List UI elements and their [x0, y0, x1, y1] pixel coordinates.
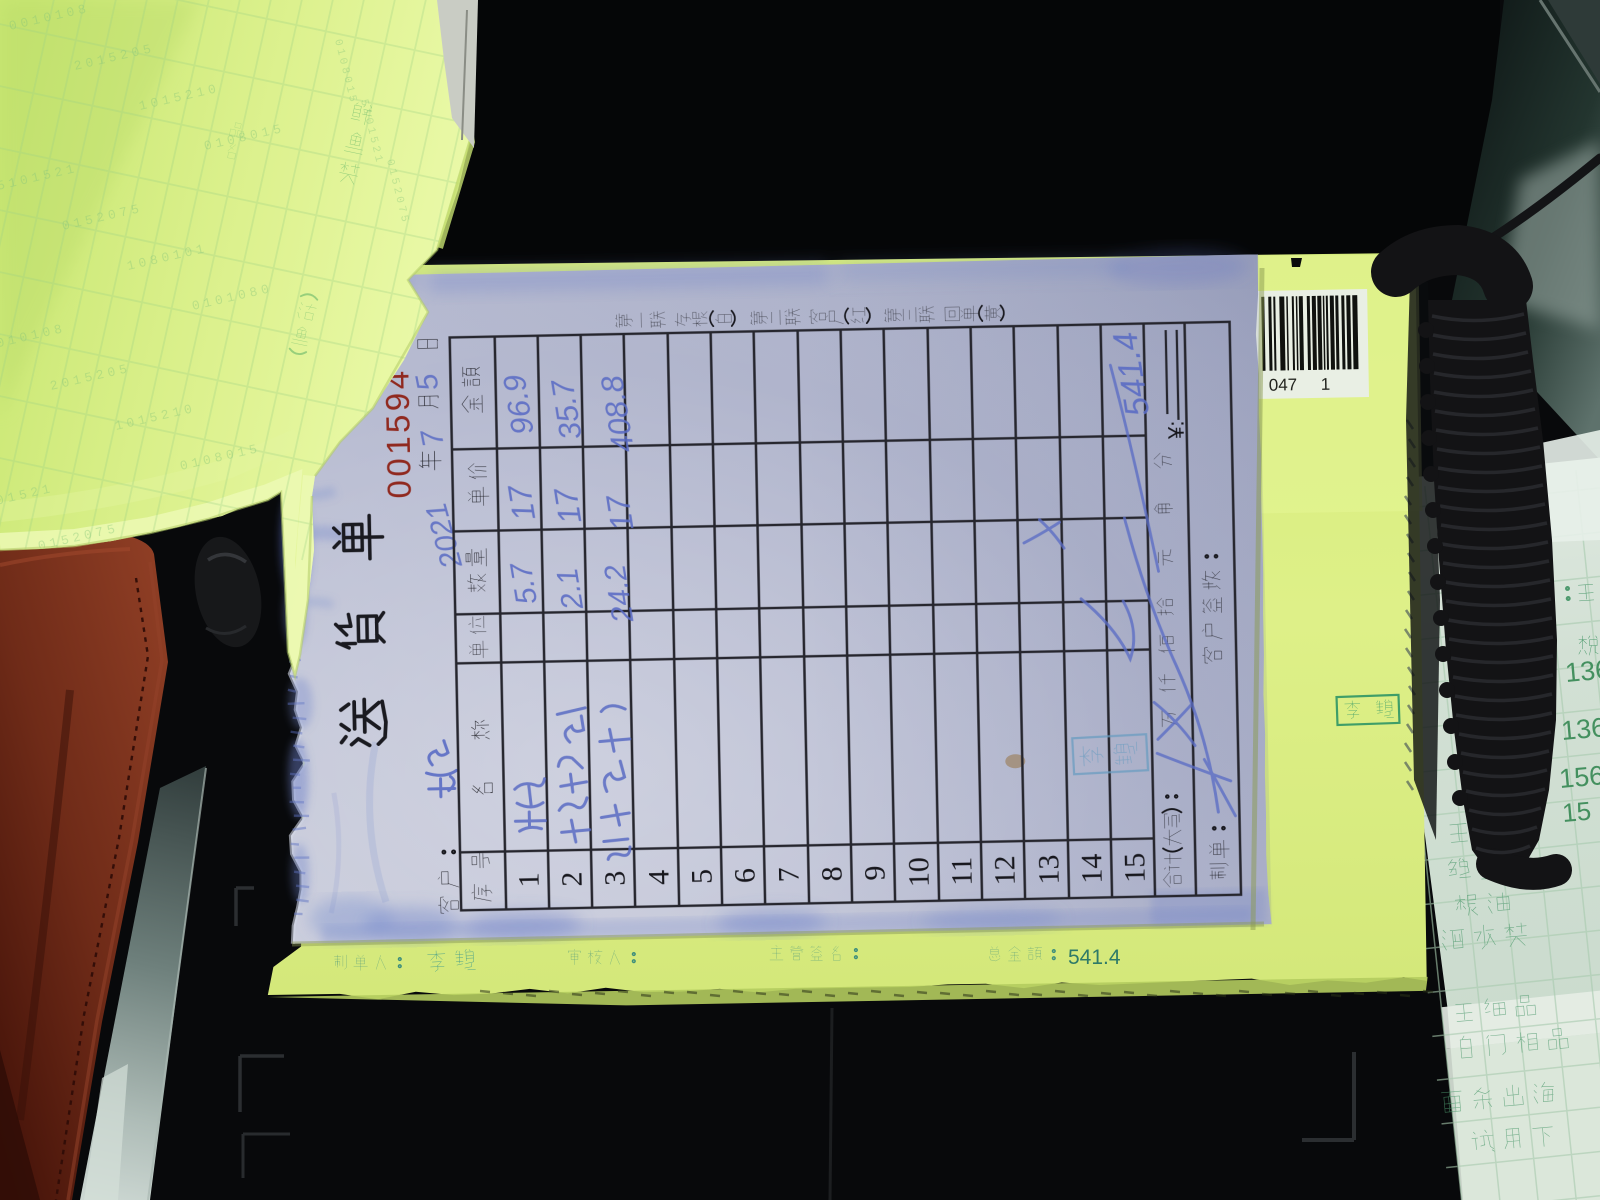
svg-text:156: 156	[1558, 760, 1600, 794]
svg-text:2.1: 2.1	[551, 566, 590, 613]
svg-text:4: 4	[642, 870, 675, 886]
svg-text:14: 14	[1075, 853, 1109, 884]
svg-text:17: 17	[501, 481, 542, 523]
svg-text:7: 7	[772, 867, 805, 883]
svg-text:5.7: 5.7	[505, 559, 544, 607]
svg-text:1: 1	[512, 872, 545, 888]
svg-text:047 1: 047 1	[1269, 375, 1331, 395]
svg-text:15: 15	[1561, 796, 1592, 828]
svg-text:136: 136	[1564, 654, 1600, 688]
svg-text:3: 3	[598, 870, 631, 886]
svg-text:¥:: ¥:	[1164, 420, 1189, 440]
svg-text:136: 136	[1560, 712, 1600, 746]
svg-text:5: 5	[685, 869, 718, 885]
svg-text:13: 13	[1032, 854, 1066, 885]
svg-text:2: 2	[555, 871, 588, 887]
svg-text:11: 11	[945, 857, 979, 887]
svg-text:9: 9	[858, 865, 891, 881]
svg-text:15: 15	[1118, 853, 1152, 884]
svg-text:10: 10	[902, 857, 936, 888]
svg-text:17: 17	[547, 484, 588, 526]
svg-text:6: 6	[728, 868, 761, 884]
svg-text:541.4: 541.4	[1068, 946, 1121, 969]
svg-text:12: 12	[988, 855, 1022, 886]
svg-text:17: 17	[599, 491, 640, 533]
svg-text:8: 8	[815, 866, 848, 882]
